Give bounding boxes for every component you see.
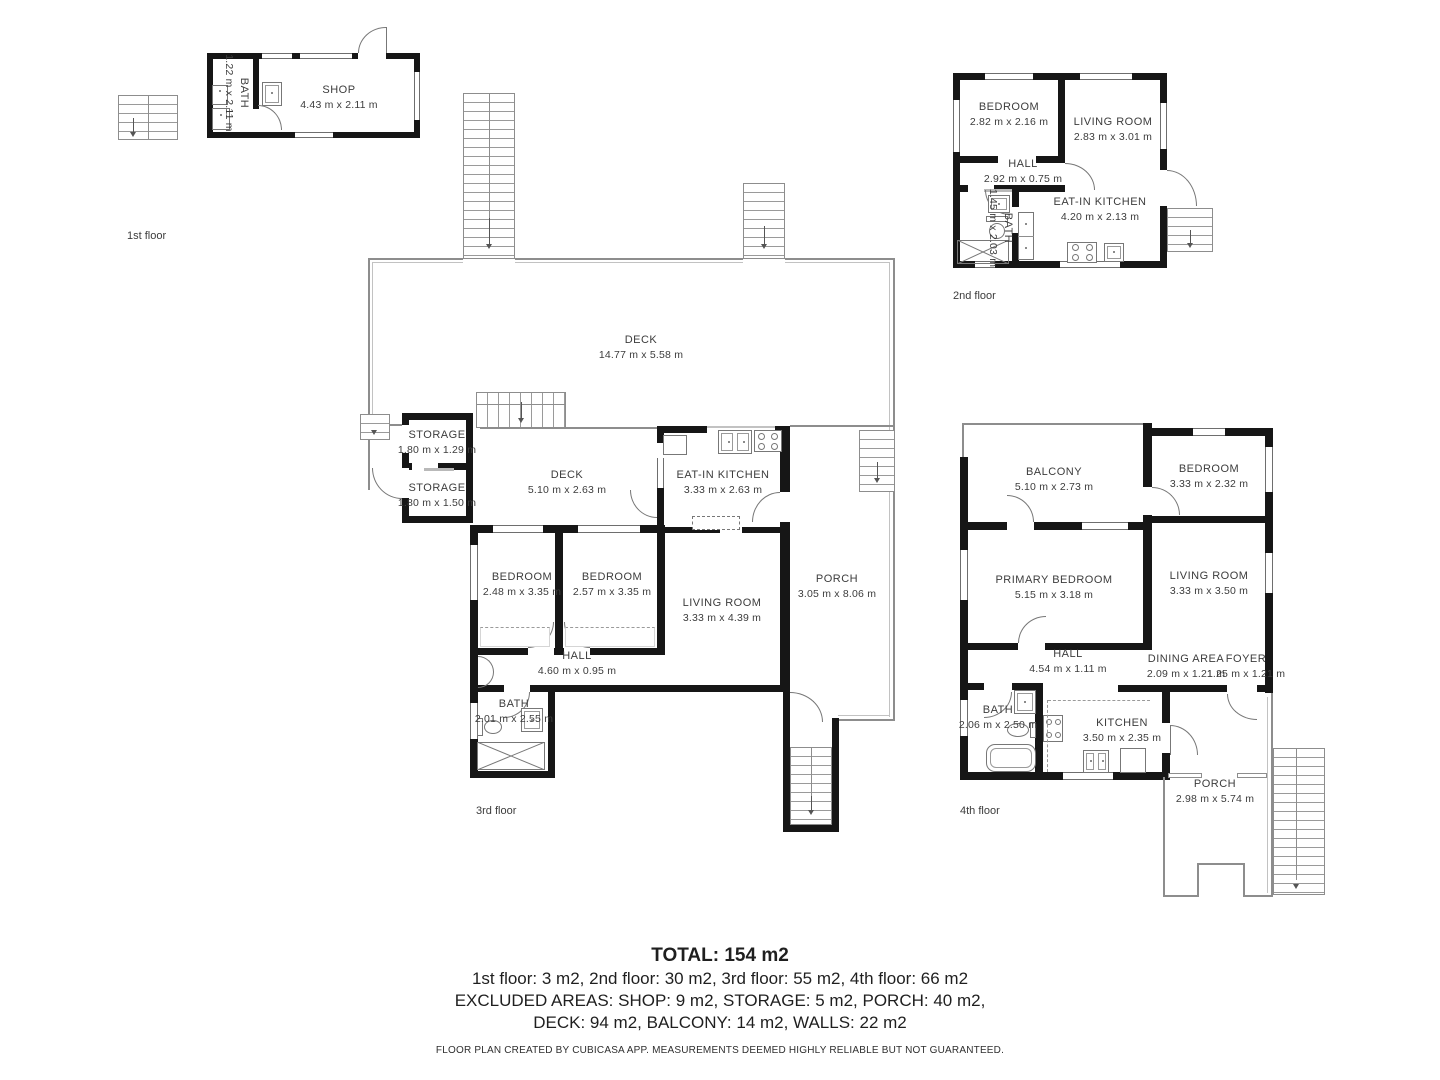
room-label-bedroom: BEDROOM 2.82 m x 2.16 m [970,101,1048,129]
stair-direction-arrow [761,244,767,249]
wall [832,718,839,832]
closet [565,627,655,647]
wall [470,771,555,778]
door-arc [1227,694,1257,720]
window [1265,553,1273,593]
window [1265,447,1273,492]
door-arc [1018,616,1046,643]
wall [402,413,473,420]
porch-outline [1163,777,1165,897]
window [470,545,478,600]
bathtub [986,744,1036,772]
stair-direction-arrow [1187,243,1193,248]
room-label-foyer: FOYER 1.25 m x 1.21 m [1207,653,1285,681]
excluded-areas-line-1: EXCLUDED AREAS: SHOP: 9 m2, STORAGE: 5 m… [0,991,1440,1011]
window [414,72,420,120]
wall [555,685,783,692]
wall [1152,516,1273,523]
wall [657,533,665,655]
wall [783,825,839,832]
door-arc [1007,495,1034,522]
room-label-bath: BATH 1.45 m x 2.03 m [986,189,1014,267]
porch-notch [1197,863,1245,865]
door-leaf [1170,725,1171,755]
window [295,132,333,138]
stair-arrow-stem [521,402,522,418]
staircase [1273,748,1325,895]
window [493,525,543,533]
room-label-deck: DECK 5.10 m x 2.63 m [528,469,606,497]
room-label-living-room: LIVING ROOM 3.33 m x 4.39 m [683,597,762,625]
staircase [360,414,390,440]
window [1160,103,1167,149]
door-opening [1143,487,1152,515]
porch-outline-inner [838,715,889,716]
room-label-eat-in-kitchen: EAT-IN KITCHEN 3.33 m x 2.63 m [677,469,770,497]
floor-plan-canvas: BATH 1.22 m x 2.11 m SHOP 4.43 m x 2.11 … [0,0,1440,1080]
staircase-divider [1296,748,1297,880]
porch-outline [838,719,895,721]
closet-door-arc [478,656,494,672]
window [960,550,968,600]
stair-arrow-stem [877,462,878,478]
door-arc [358,27,386,53]
door-arc [1152,487,1180,515]
stove [754,430,782,452]
wall [780,522,790,692]
door-opening [984,683,1012,690]
stove [1067,242,1097,263]
stair-direction-arrow [371,430,377,435]
kitchen-top-line [707,426,775,428]
kitchen-sink [1083,750,1109,773]
door-opening [1007,522,1034,530]
room-label-deck-large: DECK 14.77 m x 5.58 m [599,334,683,362]
room-label-bath: BATH 2.01 m x 2.55 m [475,698,553,726]
stair-direction-arrow [874,478,880,483]
kitchen-sink [718,430,752,454]
room-label-storage-1: STORAGE 1.80 m x 1.29 m [398,429,476,457]
window [1063,772,1113,780]
door-arc [1065,163,1095,190]
floor-label-1: 1st floor [127,230,166,242]
room-label-kitchen: KITCHEN 3.50 m x 2.35 m [1083,717,1161,745]
window [300,53,352,59]
room-label-bedroom-2: BEDROOM 2.57 m x 3.35 m [573,571,651,599]
floor-label-3: 3rd floor [476,805,516,817]
staircase-divider [148,95,149,140]
deck-outline-inner [785,262,889,263]
door-arc [1167,170,1197,206]
excluded-areas-line-2: DECK: 94 m2, BALCONY: 14 m2, WALLS: 22 m… [0,1013,1440,1033]
window [1082,522,1128,530]
room-label-storage-2: STORAGE 1.80 m x 1.50 m [398,482,476,510]
deck-outline-inner [372,262,463,263]
floor-label-2: 2nd floor [953,290,996,302]
door-opening [504,685,530,692]
room-label-bath: BATH 2.06 m x 2.50 m [959,704,1037,732]
window [578,525,640,533]
room-label-living-room: LIVING ROOM 2.83 m x 3.01 m [1074,116,1153,144]
dishwasher [1120,748,1146,773]
wall [253,59,259,109]
room-label-bath: BATH 1.22 m x 2.11 m [222,54,250,132]
room-label-hall: HALL 4.54 m x 1.11 m [1029,648,1107,676]
deck-outline [368,258,370,490]
door-arc [1170,725,1198,755]
deck-outline [368,258,463,260]
window [985,73,1033,80]
stair-arrow-stem [764,226,765,244]
stair-arrow-stem [811,796,812,810]
floor-areas-line: 1st floor: 3 m2, 2nd floor: 30 m2, 3rd f… [0,969,1440,989]
wall [1118,685,1227,692]
deck-porch-divider [790,425,893,427]
room-label-shop: SHOP 4.43 m x 2.11 m [300,84,378,112]
shower [477,742,545,770]
wall [1058,73,1065,163]
wall [402,516,473,523]
porch-notch [1243,863,1245,897]
stair-direction-arrow [1293,884,1299,889]
floor-label-4: 4th floor [960,805,1000,817]
room-label-balcony: BALCONY 5.10 m x 2.73 m [1015,466,1093,494]
window [1193,428,1225,436]
stair-arrow-stem [1190,230,1191,243]
shelf [424,468,454,471]
window [657,458,664,488]
room-label-bedroom: BEDROOM 3.33 m x 2.32 m [1170,463,1248,491]
shower-sink [262,82,282,106]
porch-outline [1163,895,1198,897]
door-opening [1160,170,1167,206]
deck-outline [785,258,894,260]
stair-direction-arrow [518,418,524,423]
room-label-primary-bedroom: PRIMARY BEDROOM 5.15 m x 3.18 m [995,574,1112,602]
window [262,53,292,59]
deck-outline-inner [515,262,743,263]
door-arc [790,692,823,722]
total-area-title: TOTAL: 154 m2 [0,945,1440,967]
window [953,100,960,152]
wall [657,426,707,433]
wall [1143,523,1152,650]
room-label-hall: HALL 4.60 m x 0.95 m [538,650,616,678]
stair-arrow-stem [133,118,134,132]
kitchen-counter-line [1048,700,1150,701]
stove [1043,715,1063,742]
stair-direction-arrow [130,132,136,137]
porch-notch [1197,863,1199,897]
room-label-bedroom-1: BEDROOM 2.48 m x 3.35 m [483,571,561,599]
stair-direction-arrow [486,244,492,249]
room-label-hall: HALL 2.92 m x 0.75 m [984,158,1062,186]
balcony-outline [962,423,964,457]
fridge [663,435,687,455]
porch-outline [1243,895,1273,897]
deck-outline-inner [372,262,373,425]
balcony-outline [962,423,1145,425]
deck-outline-inner [889,262,890,430]
stair-direction-arrow [808,810,814,815]
room-label-eat-in-kitchen: EAT-IN KITCHEN 4.20 m x 2.13 m [1054,196,1147,224]
door-opening [1162,723,1170,753]
deck-outline [515,258,743,260]
room-label-porch: PORCH 2.98 m x 5.74 m [1176,778,1254,806]
door-leaf [386,27,387,53]
wall [783,692,790,832]
window [1080,73,1132,80]
stair-arrow-stem [489,218,490,244]
deck-outline-inner [889,492,890,717]
dishwasher [692,516,740,530]
counter-divider [1018,236,1034,237]
door-opening [1227,685,1257,692]
porch-outline-inner [1267,697,1268,893]
kitchen-counter-line [1047,700,1048,772]
sink [1104,243,1124,262]
door-opening [358,53,386,59]
door-arc [258,105,282,130]
room-label-porch: PORCH 3.05 m x 8.06 m [798,573,876,601]
closet [480,627,550,647]
room-label-living-room: LIVING ROOM 3.33 m x 3.50 m [1170,570,1249,598]
disclaimer-text: FLOOR PLAN CREATED BY CUBICASA APP. MEAS… [0,1045,1440,1056]
door-arc [630,490,657,518]
